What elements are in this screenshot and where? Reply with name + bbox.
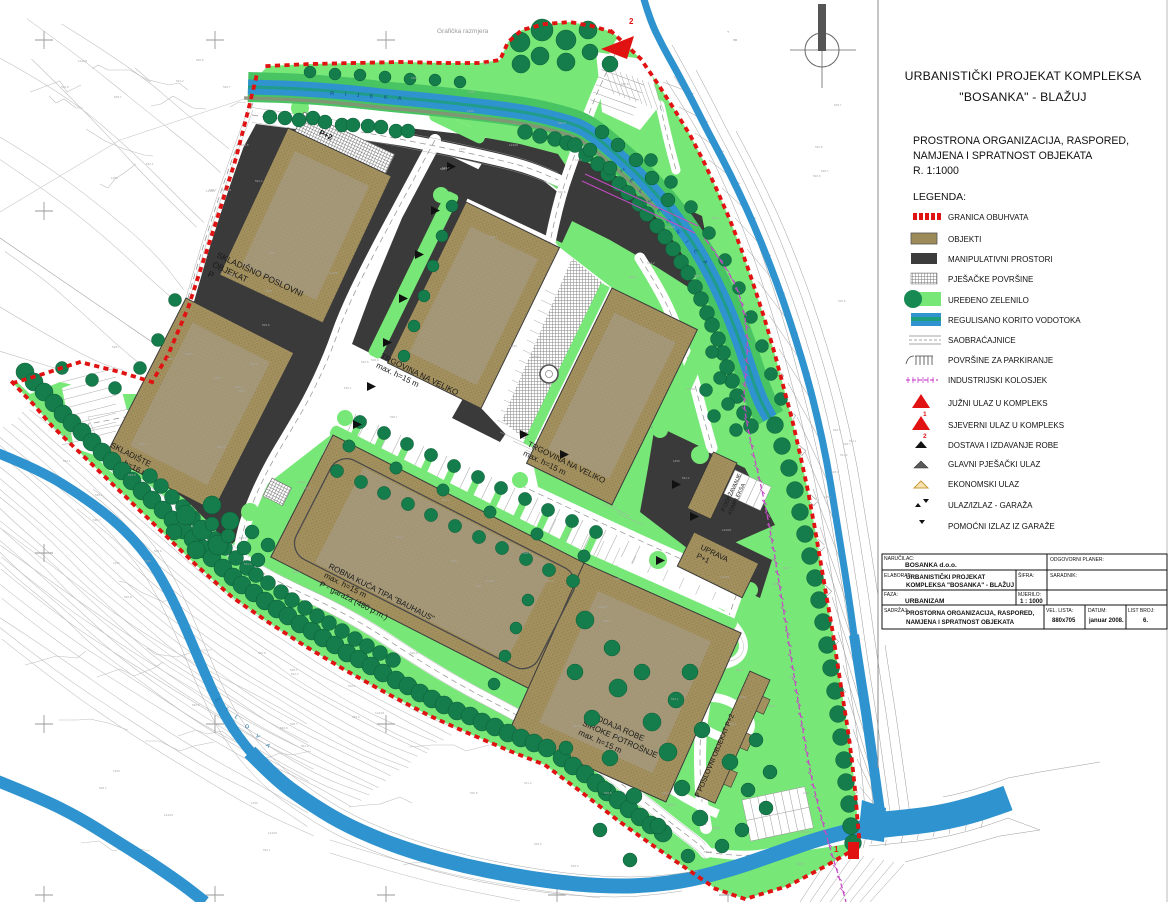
svg-text:530.8: 530.8 bbox=[573, 724, 581, 728]
svg-text:1243/2: 1243/2 bbox=[164, 813, 174, 817]
svg-text:1250: 1250 bbox=[614, 577, 621, 581]
svg-text:1243/2: 1243/2 bbox=[297, 480, 307, 484]
svg-text:2: 2 bbox=[629, 17, 634, 26]
svg-text:532.1: 532.1 bbox=[293, 570, 301, 574]
svg-text:1250: 1250 bbox=[739, 695, 746, 699]
svg-text:SADRŽAJ:: SADRŽAJ: bbox=[884, 606, 908, 614]
svg-text:1250: 1250 bbox=[111, 176, 118, 180]
svg-text:531.2: 531.2 bbox=[647, 261, 655, 265]
svg-text:532.1: 532.1 bbox=[442, 498, 450, 502]
svg-text:529.9: 529.9 bbox=[534, 842, 542, 846]
svg-text:529.9: 529.9 bbox=[571, 864, 579, 868]
svg-text:530.8: 530.8 bbox=[241, 143, 249, 147]
svg-text:529.9: 529.9 bbox=[214, 376, 222, 380]
svg-text:1250: 1250 bbox=[251, 801, 258, 805]
svg-text:529.9: 529.9 bbox=[227, 273, 235, 277]
svg-text:528.7: 528.7 bbox=[668, 803, 676, 807]
svg-text:528.7: 528.7 bbox=[290, 722, 298, 726]
svg-text:1243/2: 1243/2 bbox=[686, 387, 696, 391]
svg-text:531.2: 531.2 bbox=[789, 675, 797, 679]
svg-text:URBANISTIČKI PROJEKAT: URBANISTIČKI PROJEKAT bbox=[906, 574, 986, 581]
svg-text:530.8: 530.8 bbox=[258, 651, 266, 655]
svg-text:BOSANKA d.o.o.: BOSANKA d.o.o. bbox=[905, 562, 957, 569]
svg-text:DOSTAVA I IZDAVANJE ROBE: DOSTAVA I IZDAVANJE ROBE bbox=[948, 441, 1058, 450]
svg-text:SARADNIK:: SARADNIK: bbox=[1050, 573, 1077, 579]
svg-text:532.1: 532.1 bbox=[95, 493, 103, 497]
svg-text:530.8: 530.8 bbox=[280, 726, 288, 730]
svg-text:PROSTRONA ORGANIZACIJA, RASPOR: PROSTRONA ORGANIZACIJA, RASPORED, bbox=[913, 135, 1129, 147]
svg-text:URBANISTIČKI PROJEKAT KOMPLEKS: URBANISTIČKI PROJEKAT KOMPLEKSA bbox=[905, 68, 1142, 83]
svg-text:1250: 1250 bbox=[468, 90, 475, 94]
svg-text:MANIPULATIVNI PROSTORI: MANIPULATIVNI PROSTORI bbox=[948, 255, 1053, 264]
svg-text:531.2: 531.2 bbox=[546, 579, 554, 583]
svg-text:532.1: 532.1 bbox=[768, 704, 776, 708]
svg-text:530.8: 530.8 bbox=[250, 362, 258, 366]
svg-text:529.9: 529.9 bbox=[352, 715, 360, 719]
svg-text:1250: 1250 bbox=[144, 559, 151, 563]
svg-text:INDUSTRIJSKI KOLOSJEK: INDUSTRIJSKI KOLOSJEK bbox=[948, 376, 1048, 385]
svg-text:1250: 1250 bbox=[113, 561, 120, 565]
svg-text:Grafička razmjera: Grafička razmjera bbox=[437, 28, 489, 35]
svg-text:530.8: 530.8 bbox=[192, 703, 200, 707]
svg-text:532.1: 532.1 bbox=[736, 668, 744, 672]
svg-text:PJEŠAČKE POVRŠINE: PJEŠAČKE POVRŠINE bbox=[948, 275, 1033, 284]
svg-text:532.1: 532.1 bbox=[344, 386, 352, 390]
svg-text:530.8: 530.8 bbox=[712, 826, 720, 830]
svg-text:529.9: 529.9 bbox=[833, 428, 841, 432]
svg-text:530.8: 530.8 bbox=[361, 360, 369, 364]
svg-text:528.7: 528.7 bbox=[238, 389, 246, 393]
svg-text:530.8: 530.8 bbox=[196, 58, 204, 62]
svg-text:530.8: 530.8 bbox=[704, 850, 712, 854]
svg-text:1250: 1250 bbox=[824, 495, 831, 499]
svg-text:532.1: 532.1 bbox=[712, 216, 720, 220]
svg-text:1243/2: 1243/2 bbox=[509, 143, 519, 147]
svg-text:UREĐENO ZELENILO: UREĐENO ZELENILO bbox=[948, 296, 1029, 305]
svg-text:1250: 1250 bbox=[113, 769, 120, 773]
svg-text:529.9: 529.9 bbox=[262, 323, 270, 327]
svg-text:532.1: 532.1 bbox=[616, 734, 624, 738]
svg-text:530.8: 530.8 bbox=[621, 82, 629, 86]
svg-text:6.: 6. bbox=[1143, 618, 1148, 624]
svg-text:528.7: 528.7 bbox=[223, 85, 231, 89]
svg-text:528.7: 528.7 bbox=[262, 496, 270, 500]
svg-text:528.7: 528.7 bbox=[783, 566, 791, 570]
svg-text:1243/2: 1243/2 bbox=[329, 271, 339, 275]
svg-text:1243/2: 1243/2 bbox=[268, 831, 278, 835]
svg-text:529.9: 529.9 bbox=[629, 275, 637, 279]
svg-text:1 : 1000: 1 : 1000 bbox=[1020, 598, 1043, 605]
svg-text:528.7: 528.7 bbox=[773, 582, 781, 586]
svg-text:528.7: 528.7 bbox=[114, 95, 122, 99]
svg-text:529.9: 529.9 bbox=[235, 385, 243, 389]
svg-text:1243/2: 1243/2 bbox=[78, 59, 88, 63]
svg-text:532.1: 532.1 bbox=[263, 848, 271, 852]
svg-text:1250: 1250 bbox=[467, 109, 474, 113]
svg-text:529.9: 529.9 bbox=[603, 619, 611, 623]
svg-text:2: 2 bbox=[923, 433, 927, 440]
svg-text:1250: 1250 bbox=[268, 251, 275, 255]
svg-text:531.2: 531.2 bbox=[291, 672, 299, 676]
svg-text:1250: 1250 bbox=[673, 459, 680, 463]
svg-text:532.1: 532.1 bbox=[396, 535, 404, 539]
svg-text:1: 1 bbox=[923, 411, 927, 418]
svg-text:1250: 1250 bbox=[265, 289, 272, 293]
svg-text:GLAVNI PJEŠAČKI ULAZ: GLAVNI PJEŠAČKI ULAZ bbox=[948, 460, 1040, 469]
svg-text:531.2: 531.2 bbox=[682, 476, 690, 480]
svg-text:529.9: 529.9 bbox=[217, 445, 225, 449]
svg-text:1243/2: 1243/2 bbox=[375, 711, 385, 715]
svg-text:530.8: 530.8 bbox=[128, 473, 136, 477]
svg-text:529.9: 529.9 bbox=[154, 549, 162, 553]
svg-text:530.8: 530.8 bbox=[815, 145, 823, 149]
svg-text:OBJEKTI: OBJEKTI bbox=[948, 235, 981, 244]
svg-text:DATUM:: DATUM: bbox=[1088, 608, 1107, 614]
svg-text:R. 1:1000: R. 1:1000 bbox=[913, 165, 959, 177]
svg-text:529.9: 529.9 bbox=[411, 76, 419, 80]
svg-text:POVRŠINE ZA PARKIRANJE: POVRŠINE ZA PARKIRANJE bbox=[948, 356, 1053, 365]
svg-text:NAMJENA I SPRATNOST OBJEKATA: NAMJENA I SPRATNOST OBJEKATA bbox=[913, 150, 1093, 162]
svg-text:528.7: 528.7 bbox=[834, 103, 842, 107]
svg-text:532.1: 532.1 bbox=[729, 722, 737, 726]
svg-text:1250: 1250 bbox=[662, 791, 669, 795]
svg-text:529.9: 529.9 bbox=[239, 536, 247, 540]
svg-text:SJEVERNI ULAZ U KOMPLEKS: SJEVERNI ULAZ U KOMPLEKS bbox=[948, 421, 1064, 430]
svg-text:POMOĆNI IZLAZ IZ GARAŽE: POMOĆNI IZLAZ IZ GARAŽE bbox=[948, 522, 1055, 531]
svg-text:531.2: 531.2 bbox=[451, 559, 459, 563]
svg-text:528.7: 528.7 bbox=[167, 357, 175, 361]
svg-text:530.8: 530.8 bbox=[604, 791, 612, 795]
svg-text:januar 2008.: januar 2008. bbox=[1088, 618, 1124, 624]
svg-text:EKONOMSKI ULAZ: EKONOMSKI ULAZ bbox=[948, 480, 1019, 489]
svg-text:"BOSANKA" - BLAŽUJ: "BOSANKA" - BLAŽUJ bbox=[959, 89, 1086, 104]
svg-text:529.9: 529.9 bbox=[410, 651, 418, 655]
svg-text:1243/2: 1243/2 bbox=[666, 225, 676, 229]
svg-text:880x705: 880x705 bbox=[1052, 618, 1076, 624]
svg-text:NARUČILAC:: NARUČILAC: bbox=[884, 555, 914, 562]
svg-text:528.7: 528.7 bbox=[390, 415, 398, 419]
svg-text:530.8: 530.8 bbox=[185, 352, 193, 356]
svg-text:528.7: 528.7 bbox=[843, 442, 851, 446]
svg-text:530.8: 530.8 bbox=[838, 299, 846, 303]
svg-text:URBANIZAM: URBANIZAM bbox=[905, 598, 944, 605]
svg-text:1243/2: 1243/2 bbox=[598, 605, 608, 609]
svg-text:531.2: 531.2 bbox=[840, 453, 848, 457]
svg-text:531.2: 531.2 bbox=[301, 744, 309, 748]
svg-text:531.2: 531.2 bbox=[244, 562, 252, 566]
svg-text:532.1: 532.1 bbox=[63, 459, 71, 463]
svg-text:KOMPLEKSA "BOSANKA" - BLAŽUJ: KOMPLEKSA "BOSANKA" - BLAŽUJ bbox=[906, 581, 1015, 589]
svg-text:528.7: 528.7 bbox=[694, 274, 702, 278]
svg-text:PROSTORNA ORGANIZACIJA, RASPOR: PROSTORNA ORGANIZACIJA, RASPORED, bbox=[906, 610, 1035, 617]
svg-text:532.1: 532.1 bbox=[146, 162, 154, 166]
svg-text:ULAZ/IZLAZ - GARAŽA: ULAZ/IZLAZ - GARAŽA bbox=[948, 501, 1033, 510]
svg-text:528.7: 528.7 bbox=[442, 166, 450, 170]
svg-text:ODGOVORNI PLANER:: ODGOVORNI PLANER: bbox=[1050, 557, 1104, 563]
svg-text:528.7: 528.7 bbox=[112, 345, 120, 349]
svg-text:1250: 1250 bbox=[803, 791, 810, 795]
svg-text:529.9: 529.9 bbox=[371, 358, 379, 362]
svg-text:530.8: 530.8 bbox=[558, 121, 566, 125]
svg-text:532.1: 532.1 bbox=[348, 684, 356, 688]
svg-text:531.2: 531.2 bbox=[139, 442, 147, 446]
svg-text:1250: 1250 bbox=[475, 584, 482, 588]
svg-text:1243/2: 1243/2 bbox=[722, 528, 732, 532]
svg-text:528.7: 528.7 bbox=[532, 355, 540, 359]
svg-text:531.2: 531.2 bbox=[255, 179, 263, 183]
svg-text:1250: 1250 bbox=[575, 158, 582, 162]
svg-text:1243/2: 1243/2 bbox=[222, 188, 232, 192]
svg-text:LIST BROJ:: LIST BROJ: bbox=[1128, 608, 1155, 614]
svg-text:528.7: 528.7 bbox=[831, 470, 839, 474]
svg-text:1243/2: 1243/2 bbox=[485, 579, 495, 583]
svg-text:JUŽNI ULAZ U KOMPLEKS: JUŽNI ULAZ U KOMPLEKS bbox=[948, 399, 1048, 408]
svg-text:528.7: 528.7 bbox=[93, 518, 101, 522]
svg-text:532.1: 532.1 bbox=[671, 697, 679, 701]
svg-text:530.8: 530.8 bbox=[124, 595, 132, 599]
svg-text:528.7: 528.7 bbox=[490, 235, 498, 239]
svg-text:530.8: 530.8 bbox=[470, 791, 478, 795]
svg-text:528.7: 528.7 bbox=[797, 862, 805, 866]
svg-text:530.8: 530.8 bbox=[61, 85, 69, 89]
svg-text:1243/2: 1243/2 bbox=[720, 575, 730, 579]
svg-text:1243/2: 1243/2 bbox=[800, 830, 810, 834]
svg-text:1250: 1250 bbox=[510, 344, 517, 348]
svg-text:531.2: 531.2 bbox=[484, 62, 492, 66]
svg-text:REGULISANO KORITO VODOTOKA: REGULISANO KORITO VODOTOKA bbox=[948, 316, 1081, 325]
svg-text:531.2: 531.2 bbox=[524, 781, 532, 785]
svg-text:529.9: 529.9 bbox=[523, 551, 531, 555]
svg-text:SAOBRAĆAJNICE: SAOBRAĆAJNICE bbox=[948, 336, 1016, 345]
svg-text:528.7: 528.7 bbox=[99, 786, 107, 790]
svg-text:531.2: 531.2 bbox=[176, 79, 184, 83]
svg-text:GRANICA OBUHVATA: GRANICA OBUHVATA bbox=[948, 213, 1029, 222]
svg-text:FAZA:: FAZA: bbox=[884, 592, 898, 598]
svg-text:530.8: 530.8 bbox=[558, 190, 566, 194]
svg-text:NAMJENA I SPRATNOST OBJEKATA: NAMJENA I SPRATNOST OBJEKATA bbox=[906, 619, 1015, 626]
svg-text:ŠIFRA:: ŠIFRA: bbox=[1018, 572, 1034, 579]
svg-text:528.7: 528.7 bbox=[209, 188, 217, 192]
svg-text:528.7: 528.7 bbox=[821, 169, 829, 173]
svg-text:529.9: 529.9 bbox=[303, 486, 311, 490]
svg-text:530.8: 530.8 bbox=[813, 174, 821, 178]
svg-text:1: 1 bbox=[834, 845, 839, 854]
svg-text:1250: 1250 bbox=[459, 147, 466, 151]
svg-text:LEGENDA:: LEGENDA: bbox=[913, 191, 966, 203]
svg-text:VEL. LISTA:: VEL. LISTA: bbox=[1046, 608, 1073, 614]
